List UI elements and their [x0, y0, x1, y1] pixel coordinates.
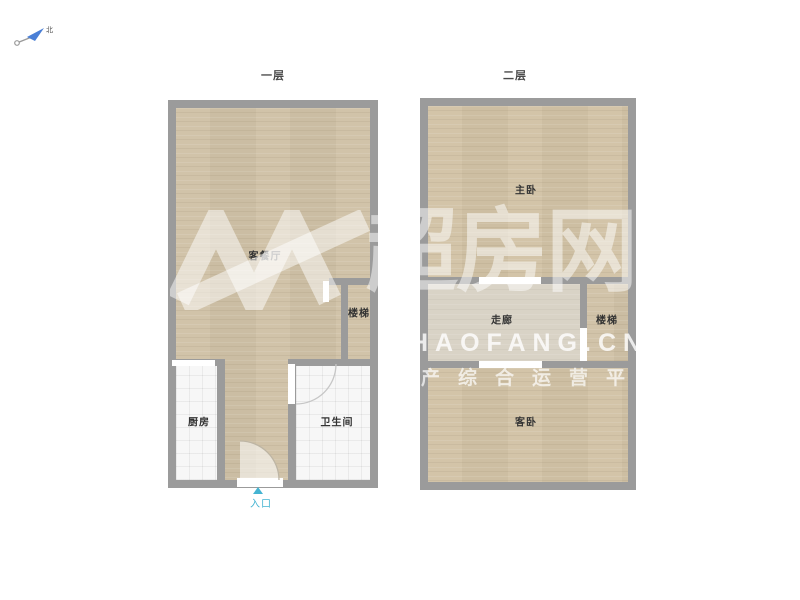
outer-wall-top	[168, 100, 378, 108]
corridor-stairs-wall	[580, 284, 587, 328]
bathroom-label: 卫生间	[321, 414, 354, 429]
outer-wall-left	[420, 98, 428, 490]
kitchen-label: 厨房	[188, 414, 210, 429]
floor1-title: 一层	[168, 67, 378, 83]
stairs-label-floor1: 楼梯	[348, 305, 370, 320]
master-bedroom-label: 主卧	[515, 182, 537, 197]
bathroom-wall-top	[288, 359, 370, 366]
entrance-arrow-icon	[253, 487, 263, 494]
stairs-label-floor2: 楼梯	[596, 312, 618, 327]
floor2-plan: 主卧 走廊 楼梯 客卧	[420, 98, 636, 490]
kitchen-wall-right	[217, 359, 225, 480]
floor2-title: 二层	[410, 67, 620, 83]
master-door-opening	[479, 277, 541, 284]
outer-wall-left	[168, 100, 176, 488]
outer-wall-bottom	[420, 482, 636, 490]
outer-wall-top	[420, 98, 636, 106]
bathroom-door-opening	[288, 364, 295, 404]
floorplan-page: { "compass": { "north_label": "北" }, "fl…	[0, 0, 800, 600]
entrance-opening	[237, 478, 283, 487]
stair-wall-vertical	[341, 285, 348, 359]
compass-north-label: 北	[46, 26, 53, 34]
stair-opening	[323, 281, 329, 302]
outer-wall-right	[628, 98, 636, 490]
outer-wall-right	[370, 100, 378, 488]
compass-north-icon: 北	[10, 22, 58, 52]
guest-door-opening	[479, 361, 542, 368]
stairs-opening	[580, 328, 587, 361]
corridor-label: 走廊	[491, 312, 513, 327]
stair-wall-horizontal	[329, 278, 370, 285]
entrance-label: 入口	[241, 495, 281, 510]
living-dining-label: 客餐厅	[249, 248, 282, 263]
floor1-plan: 客餐厅 楼梯 厨房 卫生间	[168, 100, 378, 488]
guest-bedroom-label: 客卧	[515, 414, 537, 429]
kitchen-door-opening	[172, 360, 215, 366]
